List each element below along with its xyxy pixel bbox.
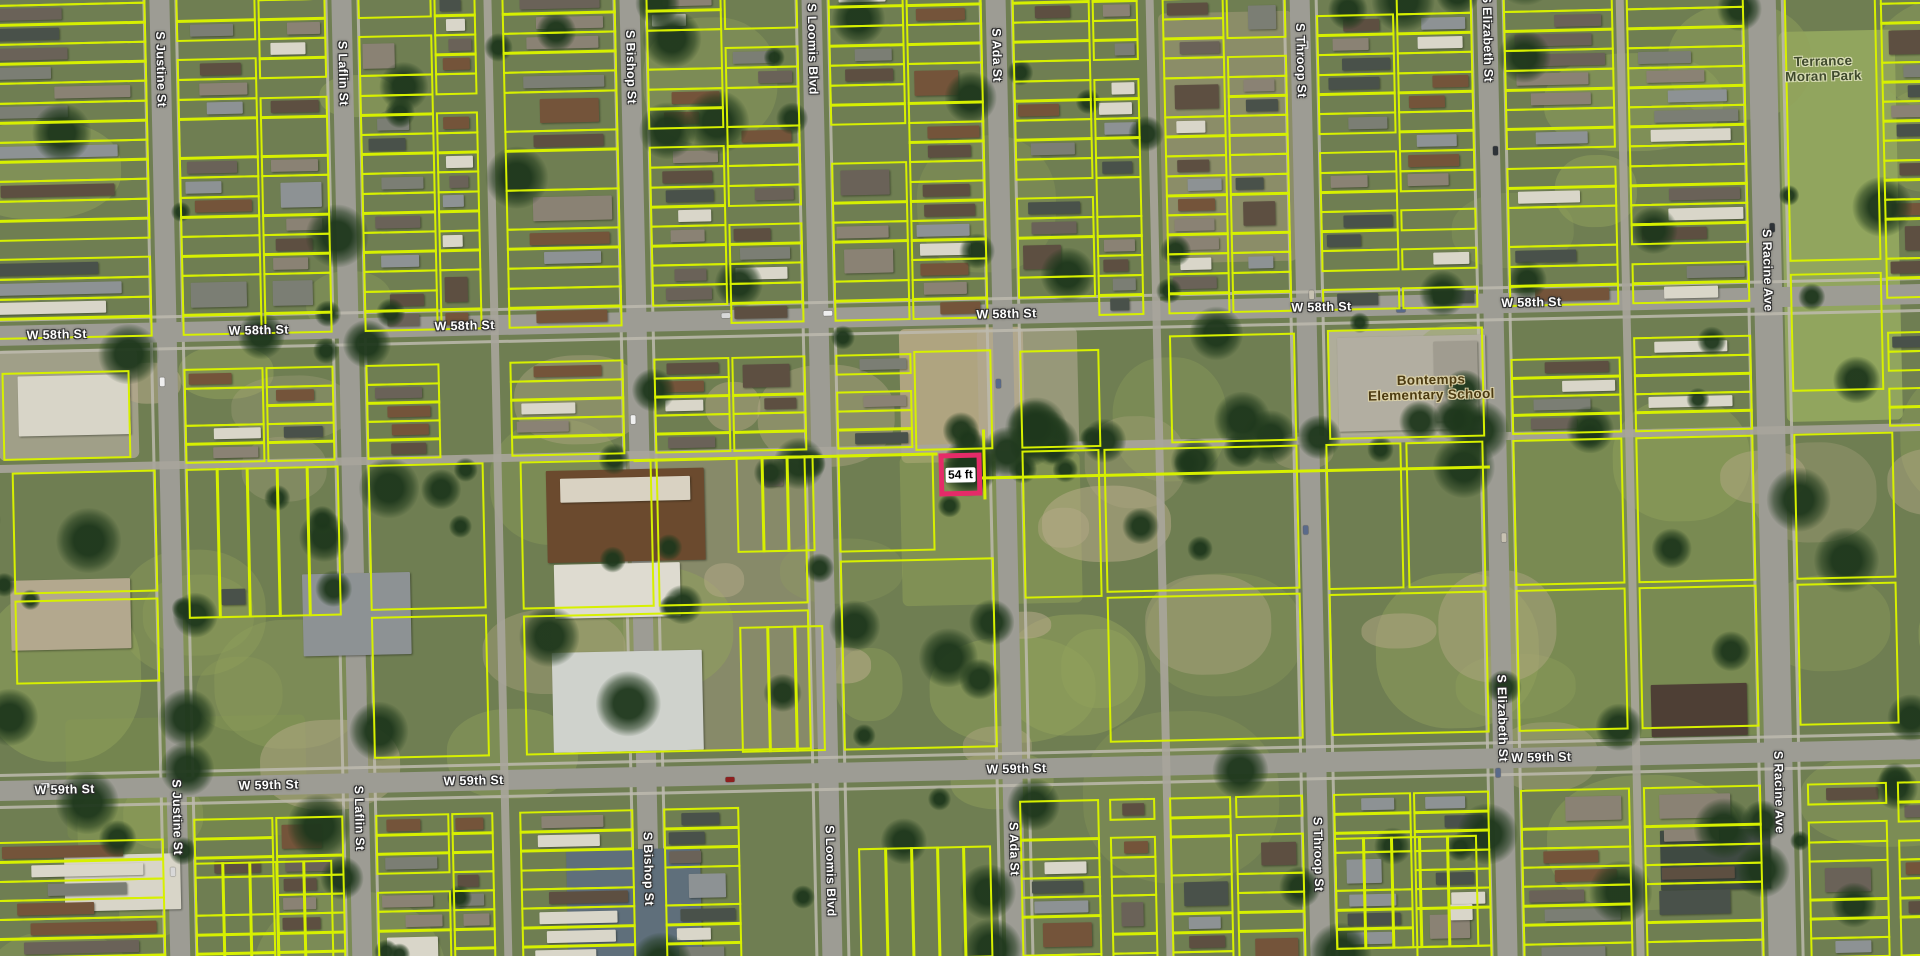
poi-label-line: Elementary School [1368,386,1495,403]
street-label: S Bishop St [641,832,657,906]
street-label: S Laflin St [335,41,350,106]
street-label: W 59th St [1511,750,1571,765]
street-label: S Bishop St [623,30,639,104]
street-label: S Loomis Blvd [823,825,839,917]
street-label: W 58th St [1501,295,1561,310]
parcel-dimension-label: 54 ft [945,467,976,483]
highlighted-parcel[interactable]: 54 ft [938,453,982,497]
street-label: W 58th St [27,327,87,342]
street-label: S Ada St [1007,822,1022,876]
street-label: W 59th St [986,761,1046,776]
street-label: S Laflin St [352,786,367,851]
street-label: S Racine Ave [1771,751,1787,834]
street-label: S Elizabeth St [1480,0,1496,82]
poi-label-line: Moran Park [1785,68,1862,84]
street-label: W 59th St [443,773,503,788]
street-label: S Ada St [989,28,1004,82]
street-label: S Elizabeth St [1494,674,1510,762]
map-rotated-canvas: 54 ft W 58th StW 58th StW 58th StW 58th … [0,0,1920,956]
street-label: S Racine Ave [1760,229,1776,312]
street-label: W 58th St [228,323,288,338]
street-label: S Throop St [1293,23,1309,98]
poi-label: BontempsElementary School [1368,372,1495,404]
street-label: W 58th St [1291,299,1351,314]
street-label: S Loomis Blvd [805,3,821,95]
street-label: W 58th St [976,306,1036,321]
street-label: S Justine St [153,31,169,107]
street-label: S Justine St [169,779,185,855]
street-label: W 58th St [434,318,494,333]
street-label: S Throop St [1310,817,1326,892]
street-label: W 59th St [238,778,298,793]
satellite-parcel-map[interactable]: 54 ft W 58th StW 58th StW 58th StW 58th … [0,0,1920,956]
street-label: W 59th St [34,782,94,797]
poi-label: TerranceMoran Park [1785,54,1862,85]
